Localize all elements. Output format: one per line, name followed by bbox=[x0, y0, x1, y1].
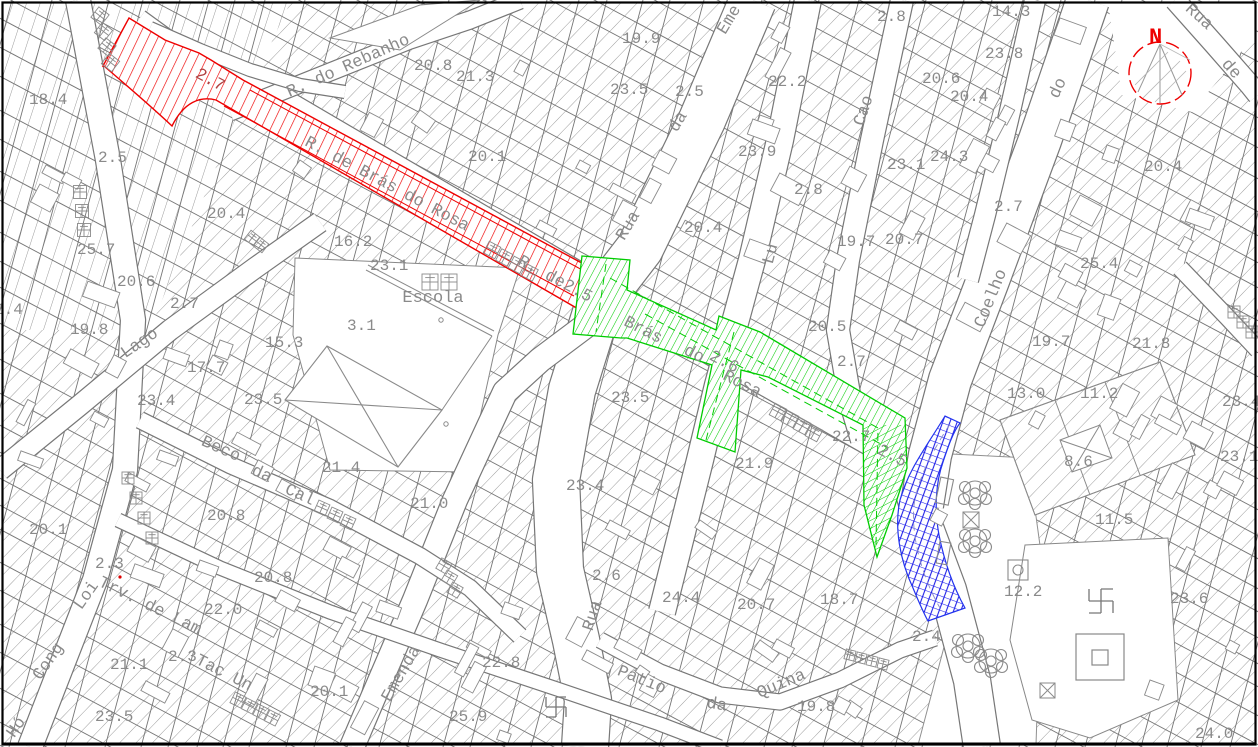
svg-text:23.4: 23.4 bbox=[1222, 393, 1258, 411]
svg-text:20.1: 20.1 bbox=[310, 683, 348, 701]
svg-text:2.4: 2.4 bbox=[912, 628, 941, 646]
svg-text:25.7: 25.7 bbox=[77, 241, 115, 259]
svg-text:2.5: 2.5 bbox=[98, 149, 127, 167]
svg-text:20.4: 20.4 bbox=[950, 88, 988, 106]
svg-text:19.7: 19.7 bbox=[837, 233, 875, 251]
svg-text:23.4: 23.4 bbox=[137, 392, 175, 410]
svg-text:da: da bbox=[705, 694, 728, 716]
svg-text:22.7: 22.7 bbox=[832, 428, 870, 446]
svg-text:19.8: 19.8 bbox=[797, 698, 835, 716]
svg-text:22.8: 22.8 bbox=[482, 654, 520, 672]
svg-text:20.7: 20.7 bbox=[885, 231, 923, 249]
svg-text:20.6: 20.6 bbox=[922, 70, 960, 88]
svg-text:11.5: 11.5 bbox=[1095, 511, 1133, 529]
svg-text:2.5: 2.5 bbox=[675, 83, 704, 101]
svg-text:24.3: 24.3 bbox=[930, 148, 968, 166]
svg-text:22.0: 22.0 bbox=[204, 601, 242, 619]
svg-text:15.3: 15.3 bbox=[265, 334, 303, 352]
svg-text:23.1: 23.1 bbox=[370, 257, 408, 275]
svg-text:20.8: 20.8 bbox=[414, 57, 452, 75]
svg-text:N: N bbox=[1149, 25, 1162, 50]
svg-text:23.9: 23.9 bbox=[738, 143, 776, 161]
svg-text:24.0: 24.0 bbox=[1195, 725, 1233, 743]
svg-text:23.4: 23.4 bbox=[566, 477, 604, 495]
svg-text:20.4: 20.4 bbox=[207, 205, 245, 223]
svg-text:18.4: 18.4 bbox=[29, 91, 67, 109]
svg-text:17.7: 17.7 bbox=[187, 359, 225, 377]
svg-text:13.0: 13.0 bbox=[1007, 385, 1045, 403]
svg-text:2.3: 2.3 bbox=[95, 555, 124, 573]
svg-text:2.7: 2.7 bbox=[837, 353, 866, 371]
svg-text:22.2: 22.2 bbox=[768, 73, 806, 91]
svg-text:12.2: 12.2 bbox=[1004, 583, 1042, 601]
svg-text:20.4: 20.4 bbox=[1144, 158, 1182, 176]
svg-text:23.6: 23.6 bbox=[1170, 590, 1208, 608]
svg-text:23.5: 23.5 bbox=[244, 391, 282, 409]
svg-text:20.1: 20.1 bbox=[29, 521, 67, 539]
svg-text:20.7: 20.7 bbox=[737, 596, 775, 614]
svg-text:20.8: 20.8 bbox=[254, 569, 292, 587]
svg-text:23.5: 23.5 bbox=[95, 708, 133, 726]
svg-text:16.2: 16.2 bbox=[334, 233, 372, 251]
svg-text:23.1: 23.1 bbox=[1220, 448, 1258, 466]
svg-text:18.7: 18.7 bbox=[820, 591, 858, 609]
svg-text:2.8: 2.8 bbox=[794, 181, 823, 199]
svg-text:3.1: 3.1 bbox=[347, 317, 376, 335]
svg-text:23.5: 23.5 bbox=[610, 81, 648, 99]
svg-text:24.4: 24.4 bbox=[662, 589, 700, 607]
svg-text:2.6: 2.6 bbox=[592, 567, 621, 585]
svg-text:23.5: 23.5 bbox=[611, 389, 649, 407]
svg-text:25.9: 25.9 bbox=[449, 708, 487, 726]
svg-text:23.8: 23.8 bbox=[985, 45, 1023, 63]
svg-text:19.8: 19.8 bbox=[70, 321, 108, 339]
svg-text:19.7: 19.7 bbox=[1032, 333, 1070, 351]
svg-text:20.8: 20.8 bbox=[207, 507, 245, 525]
svg-text:21.1: 21.1 bbox=[110, 656, 148, 674]
svg-text:20.1: 20.1 bbox=[468, 148, 506, 166]
svg-text:20.5: 20.5 bbox=[808, 318, 846, 336]
svg-text:11.2: 11.2 bbox=[1080, 385, 1118, 403]
svg-text:21.3: 21.3 bbox=[456, 68, 494, 86]
svg-text:21.0: 21.0 bbox=[410, 495, 448, 513]
svg-text:23.1: 23.1 bbox=[887, 156, 925, 174]
svg-text:2.7: 2.7 bbox=[994, 198, 1023, 216]
svg-text:2.7: 2.7 bbox=[170, 295, 199, 313]
svg-text:2.3: 2.3 bbox=[168, 648, 197, 666]
svg-text:25.4: 25.4 bbox=[1080, 255, 1118, 273]
svg-text:20.4: 20.4 bbox=[684, 219, 722, 237]
svg-text:14.3: 14.3 bbox=[992, 3, 1030, 21]
svg-text:8.6: 8.6 bbox=[1064, 453, 1093, 471]
svg-text:Escola: Escola bbox=[402, 289, 463, 308]
svg-text:21.4: 21.4 bbox=[322, 459, 360, 477]
svg-text:21.9: 21.9 bbox=[735, 455, 773, 473]
svg-text:19.9: 19.9 bbox=[622, 30, 660, 48]
svg-text:2.8: 2.8 bbox=[877, 8, 906, 26]
svg-text:20.6: 20.6 bbox=[117, 273, 155, 291]
svg-text:21.8: 21.8 bbox=[1132, 335, 1170, 353]
